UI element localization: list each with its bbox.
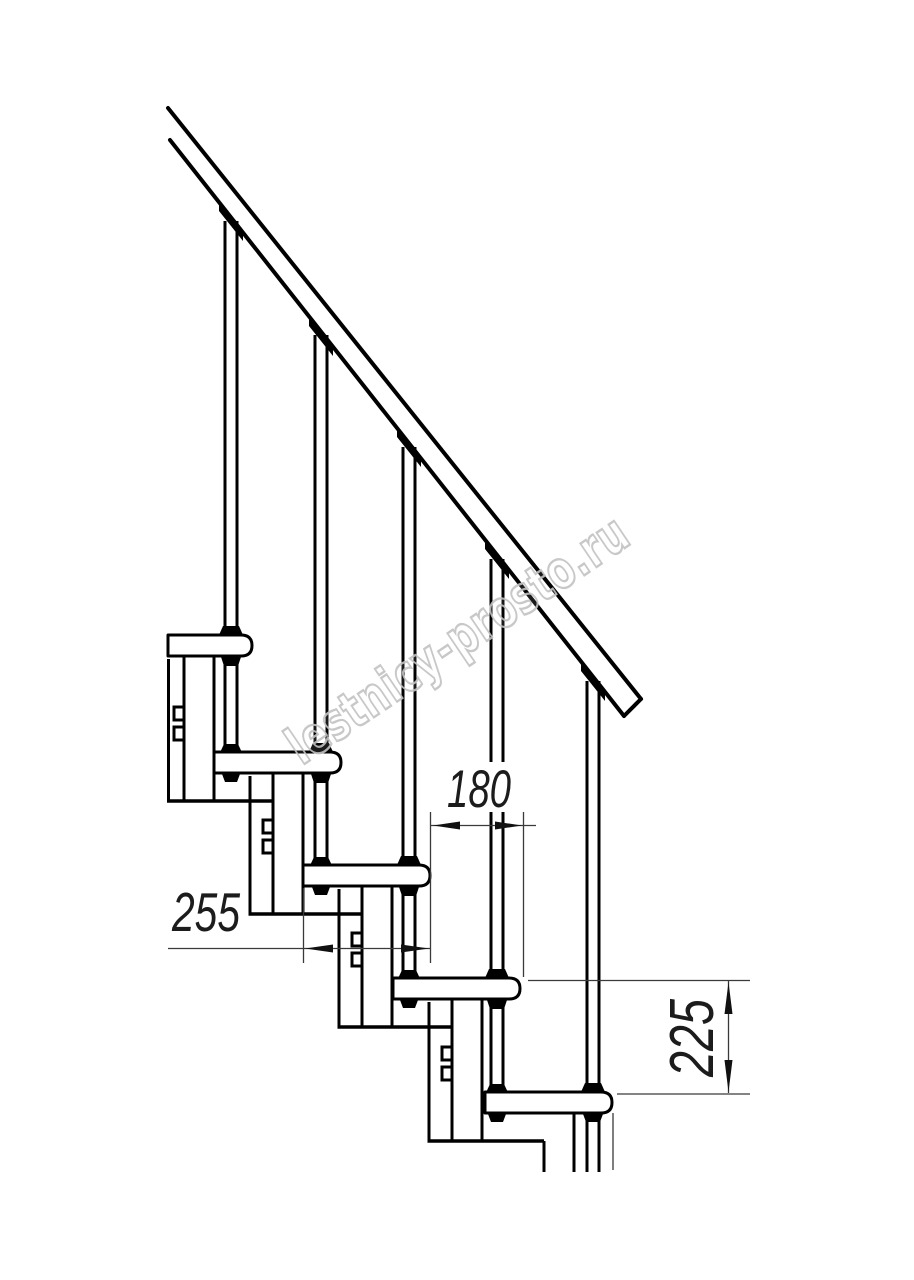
support-module-1: [167, 656, 273, 801]
baluster-5: [581, 661, 605, 1092]
arrowhead-right: [495, 822, 522, 830]
tread-connector: [581, 1083, 605, 1092]
connector-tab: [174, 707, 184, 720]
connector-tab: [352, 933, 362, 946]
arrowhead-left: [305, 945, 333, 953]
drawing-canvas: 255 180 225 lestnicy-prosto.ru: [0, 0, 914, 1280]
support-module-5: [544, 1113, 574, 1172]
handrail-end-cap: [624, 699, 641, 716]
dimension-label-225: 225: [658, 999, 727, 1078]
tread-4: [393, 978, 520, 999]
connector-tab: [442, 1047, 452, 1060]
connector-tab: [352, 953, 362, 966]
support-module-4: [428, 999, 545, 1141]
tread-connector: [485, 969, 509, 978]
connector-tab: [263, 840, 273, 853]
baluster-1: [219, 201, 243, 635]
connector-tab: [174, 727, 184, 740]
tread-3: [303, 865, 430, 886]
baluster-2: [309, 316, 333, 752]
rod-5: [583, 1113, 603, 1172]
dimension-step-run: 180: [431, 760, 536, 977]
staircase-drawing: 255 180 225 lestnicy-prosto.ru: [0, 0, 914, 1280]
tread-1: [168, 635, 252, 656]
support-module-3: [338, 886, 453, 1027]
connector-tab: [263, 820, 273, 833]
dimension-step-rise: 225: [528, 981, 750, 1095]
dimension-label-255: 255: [171, 881, 240, 943]
arrowhead-left: [433, 822, 460, 830]
connector-tab: [442, 1067, 452, 1080]
tread-connector: [219, 626, 243, 635]
dimension-label-180: 180: [447, 760, 511, 819]
tread-5: [485, 1092, 612, 1113]
tread-connector: [397, 856, 421, 865]
support-module-2: [249, 773, 363, 914]
